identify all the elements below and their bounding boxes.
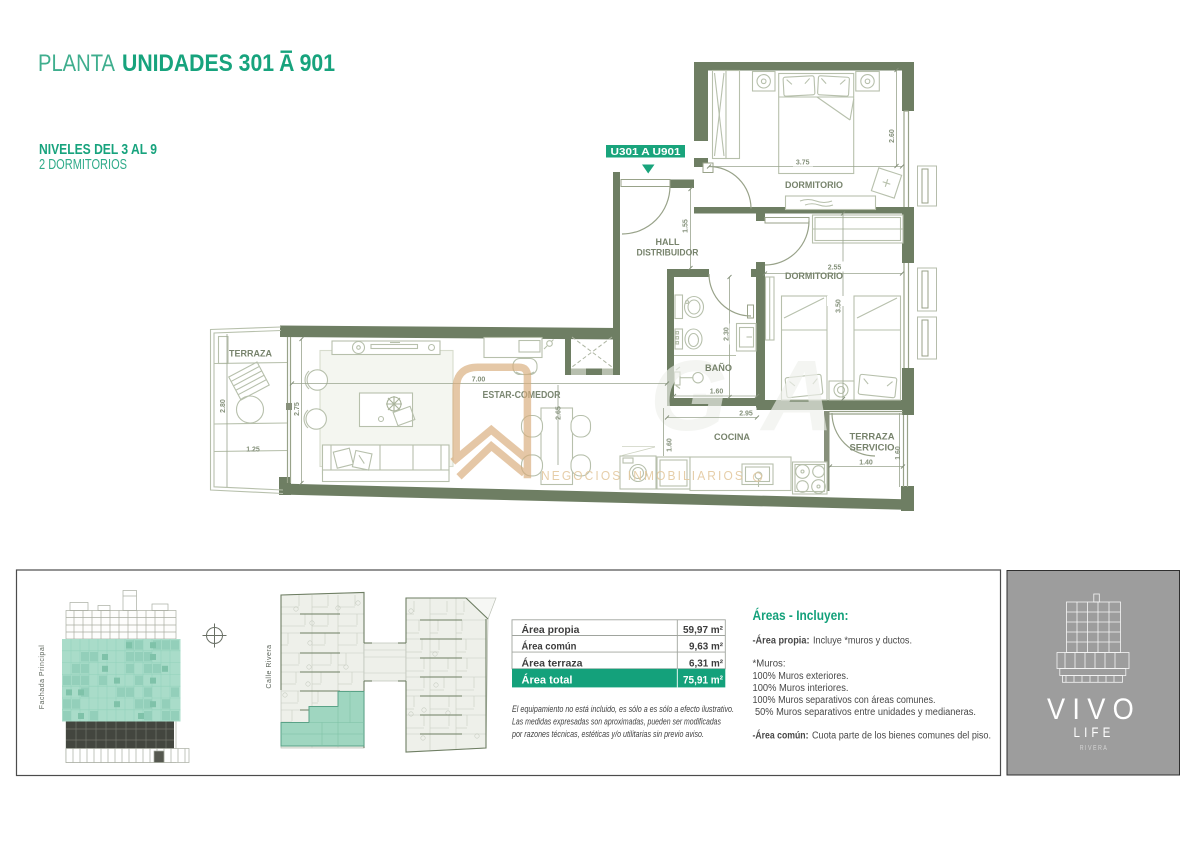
svg-text:2.65: 2.65: [556, 406, 563, 420]
svg-text:Áreas - Incluyen:: Áreas - Incluyen:: [753, 608, 849, 623]
svg-text:ESTAR-COMEDOR: ESTAR-COMEDOR: [483, 389, 561, 401]
svg-text:1.40: 1.40: [859, 460, 873, 467]
svg-text:Área común: Área común: [522, 640, 577, 653]
svg-text:1.55: 1.55: [683, 219, 690, 233]
svg-text:El equipamiento no está inclui: El equipamiento no está incluido, es sól…: [512, 704, 734, 714]
svg-text:TERRAZA: TERRAZA: [850, 432, 895, 443]
svg-text:Área total: Área total: [522, 674, 573, 687]
svg-text:1.60: 1.60: [895, 446, 902, 460]
svg-text:*Muros:: *Muros:: [753, 659, 786, 670]
svg-text:2.95: 2.95: [739, 411, 753, 418]
svg-text:Área propia: Área propia: [522, 623, 580, 636]
svg-text:por razones técnicas, estética: por razones técnicas, estéticas y/o util…: [511, 729, 704, 739]
svg-text:DORMITORIO: DORMITORIO: [785, 271, 843, 282]
svg-text:Las medidas expresadas son apr: Las medidas expresadas son aproximadas, …: [512, 717, 721, 727]
svg-text:RIVERA: RIVERA: [1080, 743, 1109, 752]
svg-text:DISTRIBUIDOR: DISTRIBUIDOR: [637, 248, 699, 259]
svg-text:Fachada Principal: Fachada Principal: [39, 645, 46, 710]
svg-text:Área terraza: Área terraza: [522, 656, 583, 669]
svg-text:59,97 m²: 59,97 m²: [683, 624, 723, 636]
svg-text:2.60: 2.60: [889, 129, 896, 143]
svg-text:100% Muros interiores.: 100% Muros interiores.: [753, 683, 849, 694]
svg-text:3.50: 3.50: [836, 299, 843, 313]
svg-text:SERVICIO: SERVICIO: [850, 443, 896, 454]
svg-text:BAÑO: BAÑO: [705, 363, 733, 374]
svg-text:-Área común:: -Área común:: [753, 729, 809, 742]
svg-text:50% Muros separativos entre un: 50% Muros separativos entre unidades y m…: [755, 707, 976, 718]
svg-text:LIFE: LIFE: [1074, 724, 1115, 740]
svg-text:UNIDADES 301 A 901: UNIDADES 301 A 901: [122, 50, 335, 77]
svg-text:-Área propia:: -Área propia:: [753, 634, 810, 647]
svg-text:1.60: 1.60: [667, 438, 674, 452]
svg-text:VIVO: VIVO: [1047, 693, 1141, 726]
svg-text:U301 A U901: U301 A U901: [611, 146, 681, 158]
svg-text:1.60: 1.60: [710, 389, 724, 396]
svg-text:NIVELES DEL 3 AL 9: NIVELES DEL 3 AL 9: [39, 142, 157, 158]
svg-text:Calle Rivera: Calle Rivera: [266, 644, 273, 688]
svg-text:Incluye *muros y ductos.: Incluye *muros y ductos.: [813, 636, 912, 647]
svg-text:2 DORMITORIOS: 2 DORMITORIOS: [39, 157, 127, 173]
svg-text:2.75: 2.75: [294, 402, 301, 416]
svg-text:HALL: HALL: [656, 237, 680, 248]
svg-text:DORMITORIO: DORMITORIO: [785, 180, 843, 191]
svg-text:100% Muros separativos con áre: 100% Muros separativos con áreas comunes…: [753, 695, 936, 706]
svg-text:1.25: 1.25: [246, 447, 260, 454]
svg-text:75,91 m²: 75,91 m²: [683, 675, 723, 687]
svg-text:TERRAZA: TERRAZA: [229, 349, 272, 360]
svg-text:2.30: 2.30: [724, 327, 731, 341]
svg-text:7.00: 7.00: [472, 377, 486, 384]
svg-text:9,63 m²: 9,63 m²: [689, 641, 723, 653]
svg-text:COCINA: COCINA: [714, 432, 750, 443]
svg-text:NEGOCIOS INMOBILIARIOS: NEGOCIOS INMOBILIARIOS: [541, 469, 745, 483]
svg-text:Cuota parte de los bienes comu: Cuota parte de los bienes comunes del pi…: [812, 731, 991, 742]
svg-text:6,31 m²: 6,31 m²: [689, 657, 723, 669]
svg-text:100% Muros exteriores.: 100% Muros exteriores.: [753, 671, 849, 682]
svg-text:PLANTA: PLANTA: [38, 50, 115, 77]
svg-text:3.75: 3.75: [796, 160, 810, 167]
svg-text:2.80: 2.80: [220, 399, 227, 413]
